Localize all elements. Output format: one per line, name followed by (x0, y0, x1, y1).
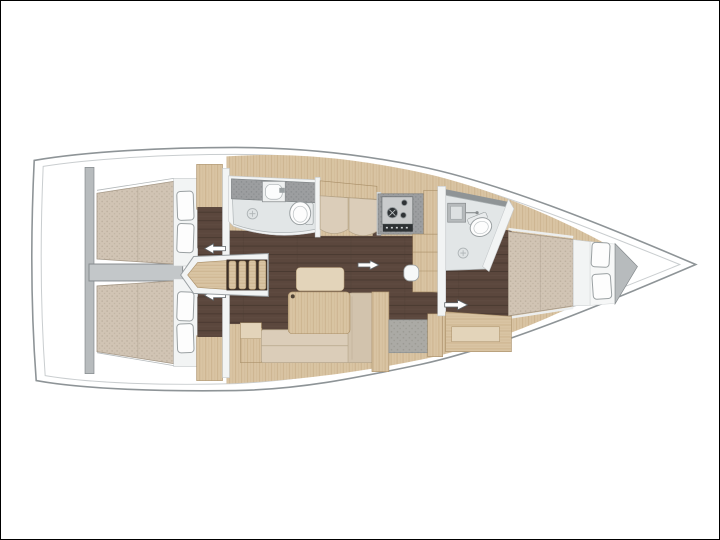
sofa-seat (261, 330, 352, 363)
seat-back-cushion (349, 198, 377, 236)
yacht-floorplan (1, 1, 719, 539)
cabin-floor (198, 207, 223, 248)
seat-side-panel (428, 314, 443, 357)
berth-head-platform (573, 240, 590, 306)
galley-sink-bin (404, 265, 419, 281)
mast-post (291, 294, 295, 298)
companionway-stairs (181, 254, 269, 297)
burner-small (402, 200, 408, 206)
table-leaf (296, 268, 344, 291)
floorplan-canvas (0, 0, 720, 540)
stove-icon (382, 197, 413, 232)
floor-drain-icon (458, 248, 468, 258)
chart-seat (389, 320, 428, 353)
pillow (177, 223, 194, 252)
pillow (177, 191, 194, 220)
engine-corridor (89, 264, 183, 281)
sink-icon (262, 181, 285, 201)
wardrobe (197, 336, 223, 381)
berth-mattress (97, 181, 174, 264)
berth-mattress (508, 232, 573, 316)
saloon-table (288, 292, 350, 334)
stair-tread (259, 261, 266, 290)
pillow (177, 324, 194, 353)
stair-tread (239, 261, 246, 289)
cabin-floor (198, 297, 223, 337)
pillow (177, 292, 194, 321)
corridor-strip (89, 264, 183, 281)
side-cabinet-top (240, 323, 261, 339)
floor-drain-icon (247, 209, 257, 219)
cabin-wall (223, 289, 230, 378)
burner-small (401, 212, 407, 218)
stair-tread (229, 261, 236, 289)
forward-bulkhead (438, 186, 446, 316)
pillow (591, 242, 610, 267)
berth-step (452, 327, 500, 342)
aft-head (228, 176, 316, 235)
berth-mattress (97, 281, 174, 364)
partition-wall (315, 177, 320, 237)
stair-tread (249, 261, 256, 290)
seat-back-cushion (320, 196, 348, 234)
sofa-divider-panel (372, 292, 389, 372)
settee (315, 177, 377, 237)
pillow (592, 273, 612, 299)
wardrobe (197, 164, 223, 209)
toilet-icon (290, 202, 313, 225)
